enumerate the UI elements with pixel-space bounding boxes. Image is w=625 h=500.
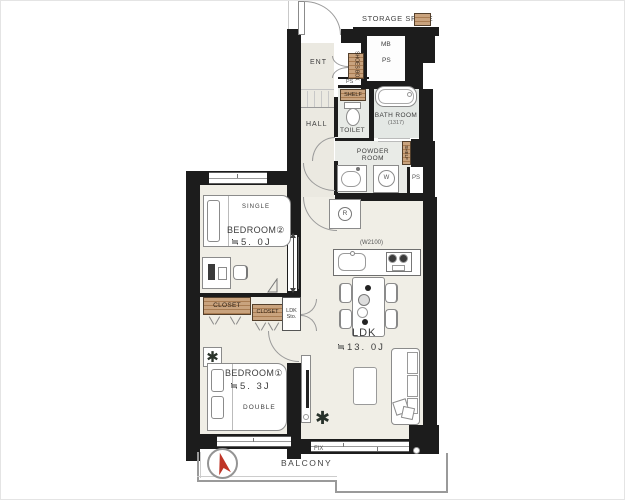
window	[311, 441, 409, 452]
step-tick	[314, 91, 315, 107]
label-toilet: TOILET	[340, 127, 365, 134]
door-triangle-icon	[267, 278, 279, 293]
window-tick	[253, 438, 254, 442]
wall	[423, 141, 435, 199]
shoes-box: SHOES BOX	[348, 53, 364, 79]
desk-pc	[218, 267, 227, 280]
vanity-bowl	[341, 171, 361, 187]
kitchen-faucet	[350, 251, 355, 256]
ldk-storage: LDK Sto.	[282, 297, 301, 331]
arrow-down-icon	[290, 288, 296, 293]
table-item	[358, 294, 370, 306]
desk-chair	[233, 265, 248, 280]
balcony-line	[335, 491, 448, 493]
window-line	[209, 178, 267, 179]
label-shelf: SHELF	[344, 92, 362, 98]
refrigerator-circle: R	[338, 207, 352, 221]
shelf-powder: SHELF	[402, 141, 411, 165]
label-ps-toilet: PS	[346, 79, 353, 85]
dining-chair	[339, 283, 352, 303]
label-ps-corner: PS	[412, 175, 420, 182]
floor-plan: STORAGE SPACE ENT HALL SHOES BOX PS SHEL…	[0, 0, 625, 500]
wall	[405, 29, 435, 63]
dining-chair	[339, 309, 352, 329]
door-arc	[304, 1, 341, 35]
wall	[407, 167, 410, 195]
label-bath-room: BATH ROOM (1317)	[371, 110, 421, 128]
label-shoes-box: SHOES BOX	[353, 51, 359, 80]
label-mb: MB	[381, 41, 391, 48]
label-single: SINGLE	[242, 204, 270, 211]
tv-screen	[306, 370, 309, 408]
drain-circle	[413, 447, 420, 454]
room-mb-ps-floor	[367, 31, 405, 81]
label-powder-line2: ROOM	[362, 155, 384, 162]
wall	[334, 97, 338, 137]
label-bath-room-text: BATH ROOM	[375, 112, 417, 119]
label-bedroom1-size: ≒5. 3J	[230, 382, 271, 393]
window-line	[311, 446, 409, 447]
wall	[423, 197, 437, 443]
stove-burner	[399, 254, 408, 263]
balcony-line	[200, 452, 201, 478]
pillow	[207, 200, 220, 242]
coffee-table	[353, 367, 377, 405]
north-needle-icon	[210, 450, 236, 477]
label-bedroom2-size: ≒5. 0J	[231, 238, 272, 249]
balcony-line	[446, 453, 448, 493]
label-fix: FIX	[314, 446, 323, 453]
sofa-cushion	[407, 352, 418, 374]
balcony-line	[197, 452, 199, 482]
stove-grill	[392, 265, 405, 271]
table-item	[362, 319, 368, 325]
step-line	[301, 107, 334, 108]
label-double: DOUBLE	[243, 404, 276, 411]
label-ent: ENT	[310, 59, 327, 67]
step-line	[301, 89, 334, 90]
label-closet-1: CLOSET	[213, 302, 241, 309]
speaker	[303, 414, 309, 420]
label-powder-room: POWDER ROOM	[337, 146, 409, 164]
wall	[411, 139, 423, 167]
wall	[186, 171, 200, 461]
table-item	[365, 285, 371, 291]
sofa-pillow	[401, 406, 415, 420]
bath-door-line	[378, 138, 410, 139]
step-tick	[307, 91, 308, 107]
porch-line	[288, 1, 289, 29]
dining-chair	[385, 309, 398, 329]
label-bath-size: (1317)	[388, 120, 404, 126]
label-bedroom2-name: BEDROOM②	[227, 225, 285, 235]
wall	[335, 138, 371, 141]
plant-icon: ✱	[315, 409, 330, 427]
storage-space-box	[414, 13, 431, 26]
sliding-door-arrow-line	[293, 238, 294, 288]
label-washer: W	[384, 175, 390, 182]
shelf-toilet: SHELF	[340, 89, 366, 101]
wall	[419, 89, 433, 141]
sofa-cushion	[407, 375, 418, 397]
step-tick	[328, 91, 329, 107]
wall	[338, 85, 369, 88]
bath-drain	[407, 92, 412, 97]
window	[217, 436, 291, 447]
balcony-line	[197, 480, 337, 482]
window-tick	[237, 174, 238, 178]
compass-icon	[207, 448, 238, 479]
label-shelf-vertical: SHELF	[404, 146, 409, 161]
label-fridge: R	[343, 210, 348, 217]
window-line	[217, 441, 291, 442]
label-ldk-name: LDK	[352, 327, 376, 340]
dining-chair	[385, 283, 398, 303]
pillow	[211, 369, 224, 392]
label-ldk-size: ≒13. 0J	[337, 343, 385, 354]
label-balcony: BALCONY	[281, 459, 332, 469]
stove-burner	[388, 254, 397, 263]
label-bedroom1-name: BEDROOM①	[225, 368, 283, 378]
window	[209, 172, 267, 184]
label-hall: HALL	[306, 121, 328, 129]
label-kitchen-width: (W2100)	[360, 240, 383, 247]
table-item	[357, 307, 368, 318]
label-ldk-sto-2: Sto.	[287, 314, 297, 320]
desk-monitor	[208, 264, 215, 280]
bed-fold-line	[228, 196, 229, 246]
label-ps-mb: PS	[382, 57, 391, 64]
pillow	[211, 396, 224, 419]
arrow-up-icon	[290, 233, 296, 238]
washing-machine-drum: W	[378, 170, 395, 187]
vanity-faucet	[356, 167, 360, 171]
window-tick	[377, 447, 378, 451]
door-arc	[332, 56, 348, 67]
label-powder-line1: POWDER	[357, 148, 389, 155]
sliding-door-track	[298, 237, 299, 289]
closet-1: CLOSET	[203, 297, 251, 315]
closet-2: CLOSET	[252, 304, 283, 321]
door-arc	[332, 67, 348, 78]
step-tick	[321, 91, 322, 107]
window-tick	[343, 443, 344, 447]
label-closet-2: CLOSET	[256, 309, 278, 315]
toilet-bowl	[346, 108, 360, 126]
